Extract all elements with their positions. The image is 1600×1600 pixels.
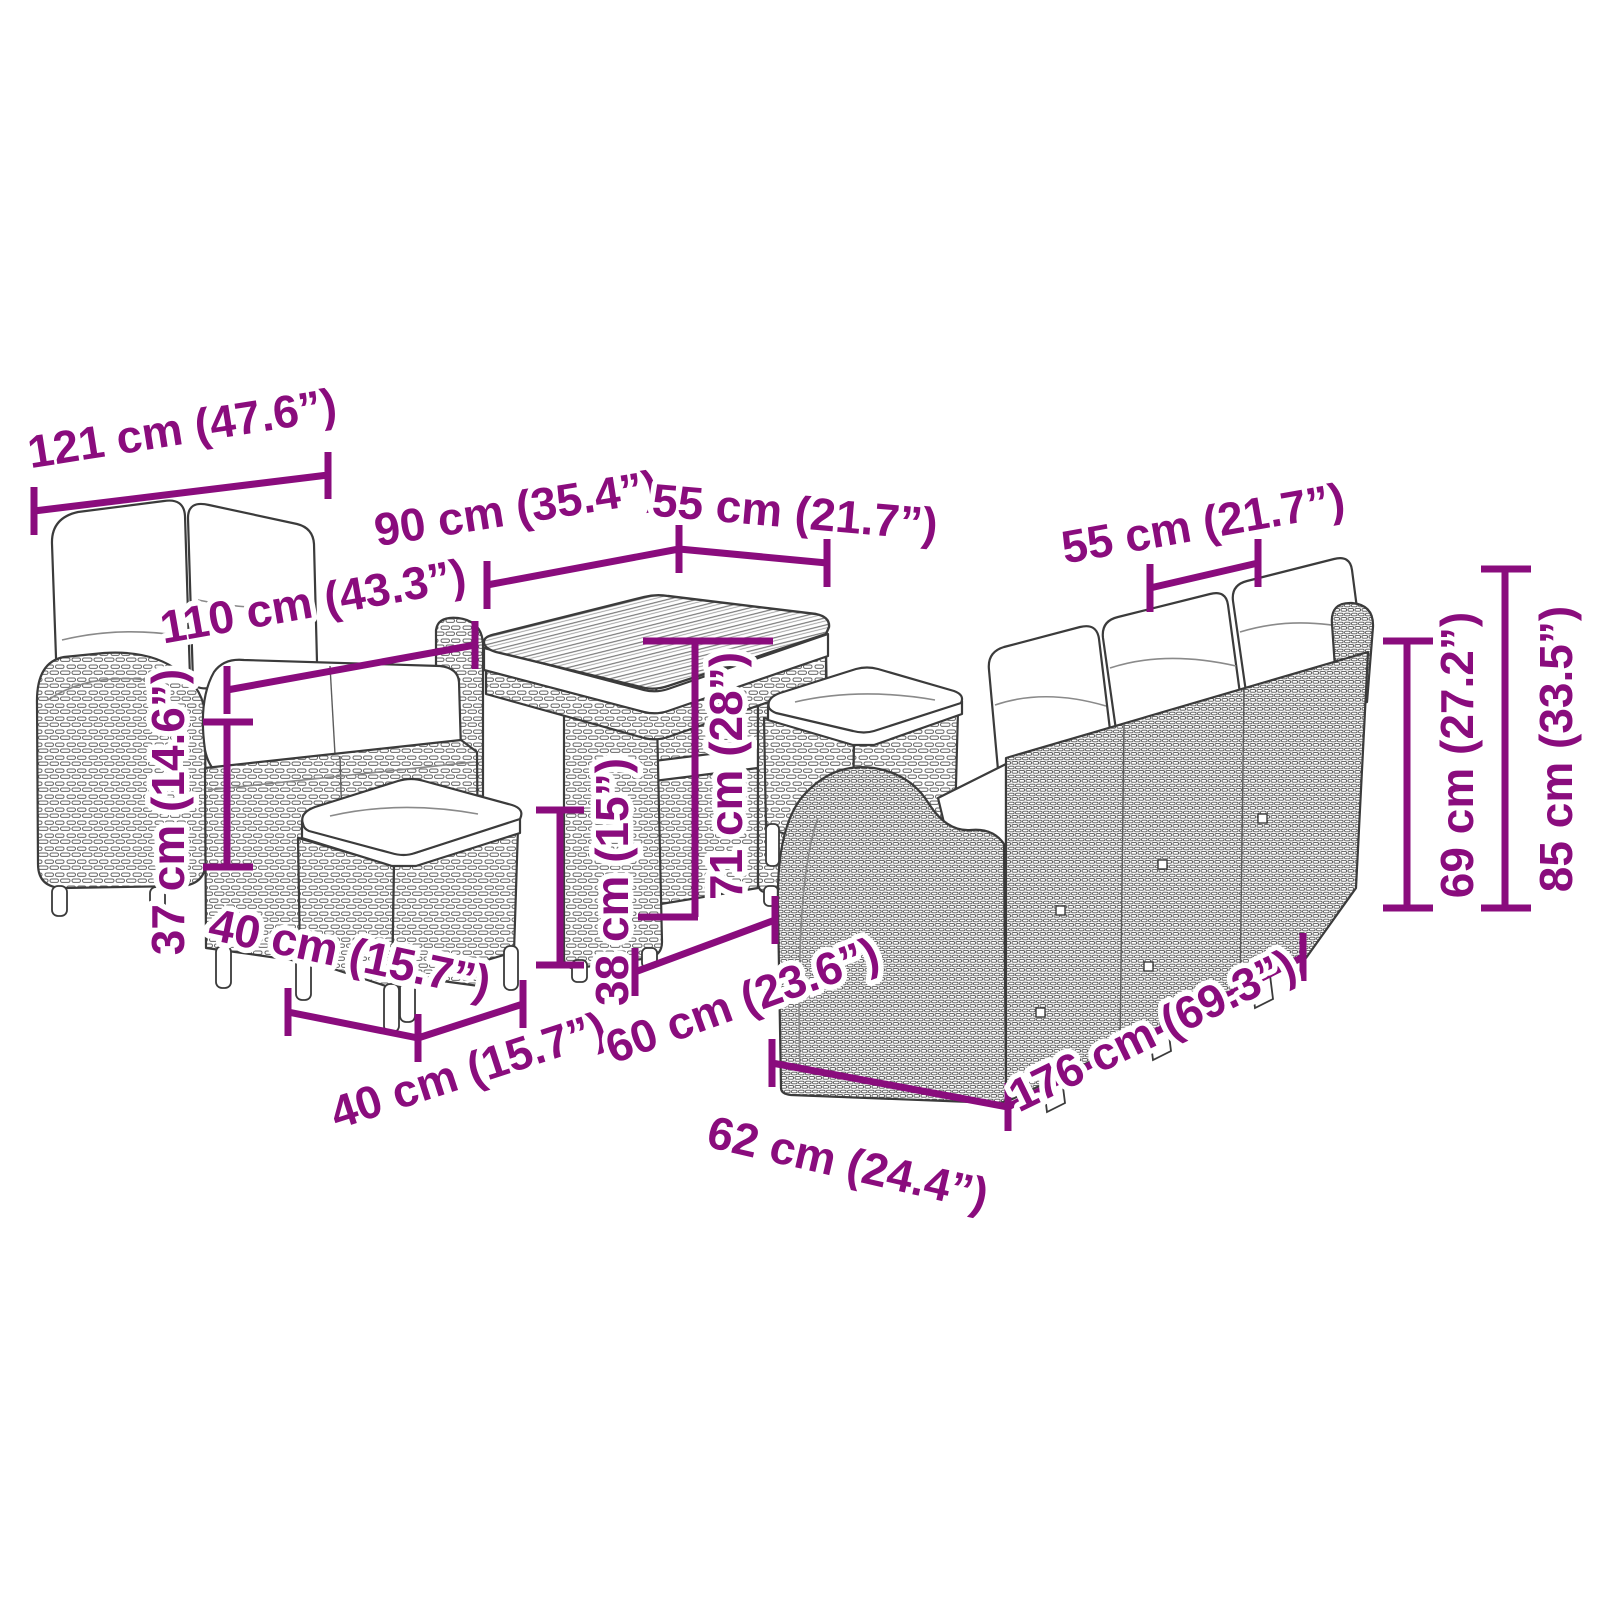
dim-stool-height: 38 cm (15”) — [536, 758, 638, 1006]
right-sofa-bolt — [1158, 860, 1167, 869]
dim-sofa3-back-height: 69 cm (27.2”) — [1383, 612, 1483, 908]
right-sofa-bolt — [1144, 962, 1153, 971]
diagram-canvas: 121 cm (47.6”) 90 cm (35.4”) 55 cm (21.7… — [0, 0, 1600, 1600]
dim-label: 62 cm (24.4”) — [703, 1105, 994, 1220]
dim-sofa3-total-height: 85 cm (33.5”) — [1481, 569, 1582, 908]
dim-label: 38 cm (15”) — [586, 758, 638, 1006]
stool-leg — [766, 824, 779, 866]
dim-label: 121 cm (47.6”) — [24, 378, 340, 478]
right-sofa — [778, 558, 1373, 1112]
dim-label: 71 cm (28”) — [700, 652, 752, 900]
dim-line — [679, 539, 827, 587]
dim-line — [1383, 641, 1433, 908]
dim-label: 55 cm (21.7”) — [650, 474, 940, 551]
dim-label: 37 cm (14.6”) — [142, 669, 194, 955]
dim-label: 90 cm (35.4”) — [371, 460, 662, 556]
stool-leg — [384, 984, 399, 1032]
dim-table-depth: 55 cm (21.7”) — [650, 474, 940, 587]
right-sofa-bolt — [1258, 814, 1267, 823]
right-sofa-bolt — [1036, 1008, 1045, 1017]
left-sofa-leg — [52, 886, 67, 916]
right-sofa-bolt — [1056, 906, 1065, 915]
stool-leg — [504, 946, 518, 990]
dimension-diagram: 121 cm (47.6”) 90 cm (35.4”) 55 cm (21.7… — [0, 0, 1600, 1600]
dim-label: 55 cm (21.7”) — [1057, 473, 1348, 574]
dim-label: 85 cm (33.5”) — [1530, 606, 1582, 892]
dim-line — [1481, 569, 1531, 908]
dim-label: 69 cm (27.2”) — [1431, 612, 1483, 898]
